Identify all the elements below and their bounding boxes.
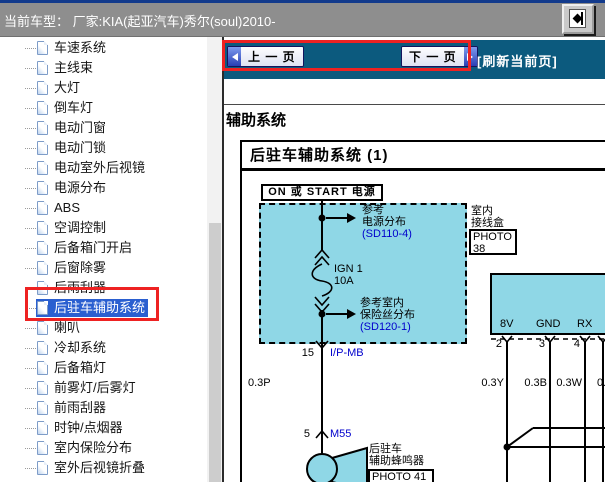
panel-toggle-button[interactable] bbox=[562, 4, 594, 34]
document-icon bbox=[37, 441, 48, 455]
sidebar-item[interactable]: 喇叭 bbox=[0, 318, 207, 338]
document-icon bbox=[37, 361, 48, 375]
junction-box-label: 室内 bbox=[471, 205, 493, 217]
ref-fuse-label: 保险丝分布 bbox=[360, 309, 415, 321]
ref-power-label: 参考 bbox=[362, 204, 384, 216]
document-icon bbox=[37, 201, 48, 215]
wire-03p-label: 0.3P bbox=[248, 377, 271, 389]
sidebar-item[interactable]: 空调控制 bbox=[0, 218, 207, 238]
document-icon bbox=[37, 41, 48, 55]
sidebar-item[interactable]: 大灯 bbox=[0, 78, 207, 98]
sidebar-item[interactable]: 时钟/点烟器 bbox=[0, 418, 207, 438]
wire-label: 0.3Y bbox=[464, 377, 504, 389]
system-tree-sidebar: 车速系统 主线束 大灯 倒车灯 电动门窗 电动门锁 电动室外后视镜 电源分布 A… bbox=[0, 37, 207, 482]
ref-fuse-link[interactable]: (SD120-1) bbox=[360, 321, 411, 333]
document-icon bbox=[37, 81, 48, 95]
document-icon bbox=[37, 301, 48, 315]
sidebar-item[interactable]: 电动室外后视镜 bbox=[0, 158, 207, 178]
document-icon bbox=[37, 261, 48, 275]
document-icon bbox=[37, 101, 48, 115]
pin-number-label: 4 bbox=[566, 338, 580, 350]
sidebar-item[interactable]: 电动门窗 bbox=[0, 118, 207, 138]
document-icon bbox=[37, 341, 48, 355]
document-icon bbox=[37, 161, 48, 175]
fuse-rating-label: 10A bbox=[334, 275, 354, 287]
photo38-box[interactable]: PHOTO 38 bbox=[469, 229, 517, 255]
sidebar-item[interactable]: 前雨刮器 bbox=[0, 398, 207, 418]
document-icon bbox=[37, 401, 48, 415]
sidebar-item[interactable]: 室内保险分布 bbox=[0, 438, 207, 458]
sidebar-item[interactable]: 后雨刮器 bbox=[0, 278, 207, 298]
buzzer-label: 后驻车 bbox=[369, 443, 402, 455]
sidebar-item[interactable]: 后窗除雾 bbox=[0, 258, 207, 278]
document-icon bbox=[37, 121, 48, 135]
ref-power-label: 电源分布 bbox=[362, 216, 406, 228]
module-pin-gnd: GND bbox=[536, 318, 560, 330]
pin-15-label: 15 bbox=[296, 347, 314, 359]
photo41-box[interactable]: PHOTO 41 bbox=[368, 469, 434, 482]
document-icon bbox=[37, 421, 48, 435]
fuse-name-label: IGN 1 bbox=[334, 263, 363, 275]
sidebar-scrollbar-thumb[interactable] bbox=[209, 223, 221, 482]
ref-fuse-label: 参考室内 bbox=[360, 297, 404, 309]
document-icon bbox=[37, 61, 48, 75]
sidebar-item[interactable]: 倒车灯 bbox=[0, 98, 207, 118]
module-pin-8v: 8V bbox=[500, 318, 513, 330]
wire-label: 0.3W bbox=[542, 377, 582, 389]
document-icon bbox=[37, 381, 48, 395]
current-vehicle-title: 当前车型： 厂家:KIA(起亚汽车)秀尔(soul)2010- bbox=[4, 11, 276, 30]
document-icon bbox=[37, 221, 48, 235]
sidebar-item[interactable]: ABS bbox=[0, 198, 207, 218]
sidebar-item[interactable]: 后备箱灯 bbox=[0, 358, 207, 378]
app-window: 当前车型： 厂家:KIA(起亚汽车)秀尔(soul)2010- 车速系统 主线束… bbox=[0, 0, 605, 482]
sidebar-item[interactable]: 室外后视镜折叠 bbox=[0, 458, 207, 478]
ref-power-link[interactable]: (SD110-4) bbox=[362, 228, 412, 240]
panel-toggle-icon bbox=[569, 9, 586, 28]
title-bar: 当前车型： 厂家:KIA(起亚汽车)秀尔(soul)2010- bbox=[0, 0, 605, 37]
document-icon bbox=[37, 141, 48, 155]
document-icon bbox=[37, 461, 48, 475]
sidebar-item[interactable]: 主线束 bbox=[0, 58, 207, 78]
junction-box-label: 接线盒 bbox=[471, 217, 504, 229]
connector-ipmb-link[interactable]: I/P-MB bbox=[330, 347, 364, 359]
sidebar-item[interactable]: 前雾灯/后雾灯 bbox=[0, 378, 207, 398]
sidebar-item[interactable]: 车速系统 bbox=[0, 38, 207, 58]
pin-number-label: 2 bbox=[488, 338, 502, 350]
sidebar-item[interactable]: 冷却系统 bbox=[0, 338, 207, 358]
sidebar-item[interactable]: 电源分布 bbox=[0, 178, 207, 198]
document-icon bbox=[37, 321, 48, 335]
document-icon bbox=[37, 241, 48, 255]
wire-label: 0. bbox=[597, 377, 605, 389]
wiring-diagram-svg bbox=[222, 37, 605, 482]
sidebar-item[interactable]: 后备箱门开启 bbox=[0, 238, 207, 258]
sidebar-item[interactable]: 电动门锁 bbox=[0, 138, 207, 158]
wire-label: 0.3B bbox=[507, 377, 547, 389]
connector-m55-link[interactable]: M55 bbox=[330, 428, 351, 440]
document-icon bbox=[37, 281, 48, 295]
pin-5-label: 5 bbox=[296, 428, 310, 440]
pin-number-label: 3 bbox=[531, 338, 545, 350]
buzzer-label: 辅助蜂鸣器 bbox=[369, 455, 424, 467]
sidebar-item-selected[interactable]: 后驻车辅助系统 bbox=[0, 298, 207, 318]
document-icon bbox=[37, 181, 48, 195]
module-pin-rx: RX bbox=[577, 318, 592, 330]
